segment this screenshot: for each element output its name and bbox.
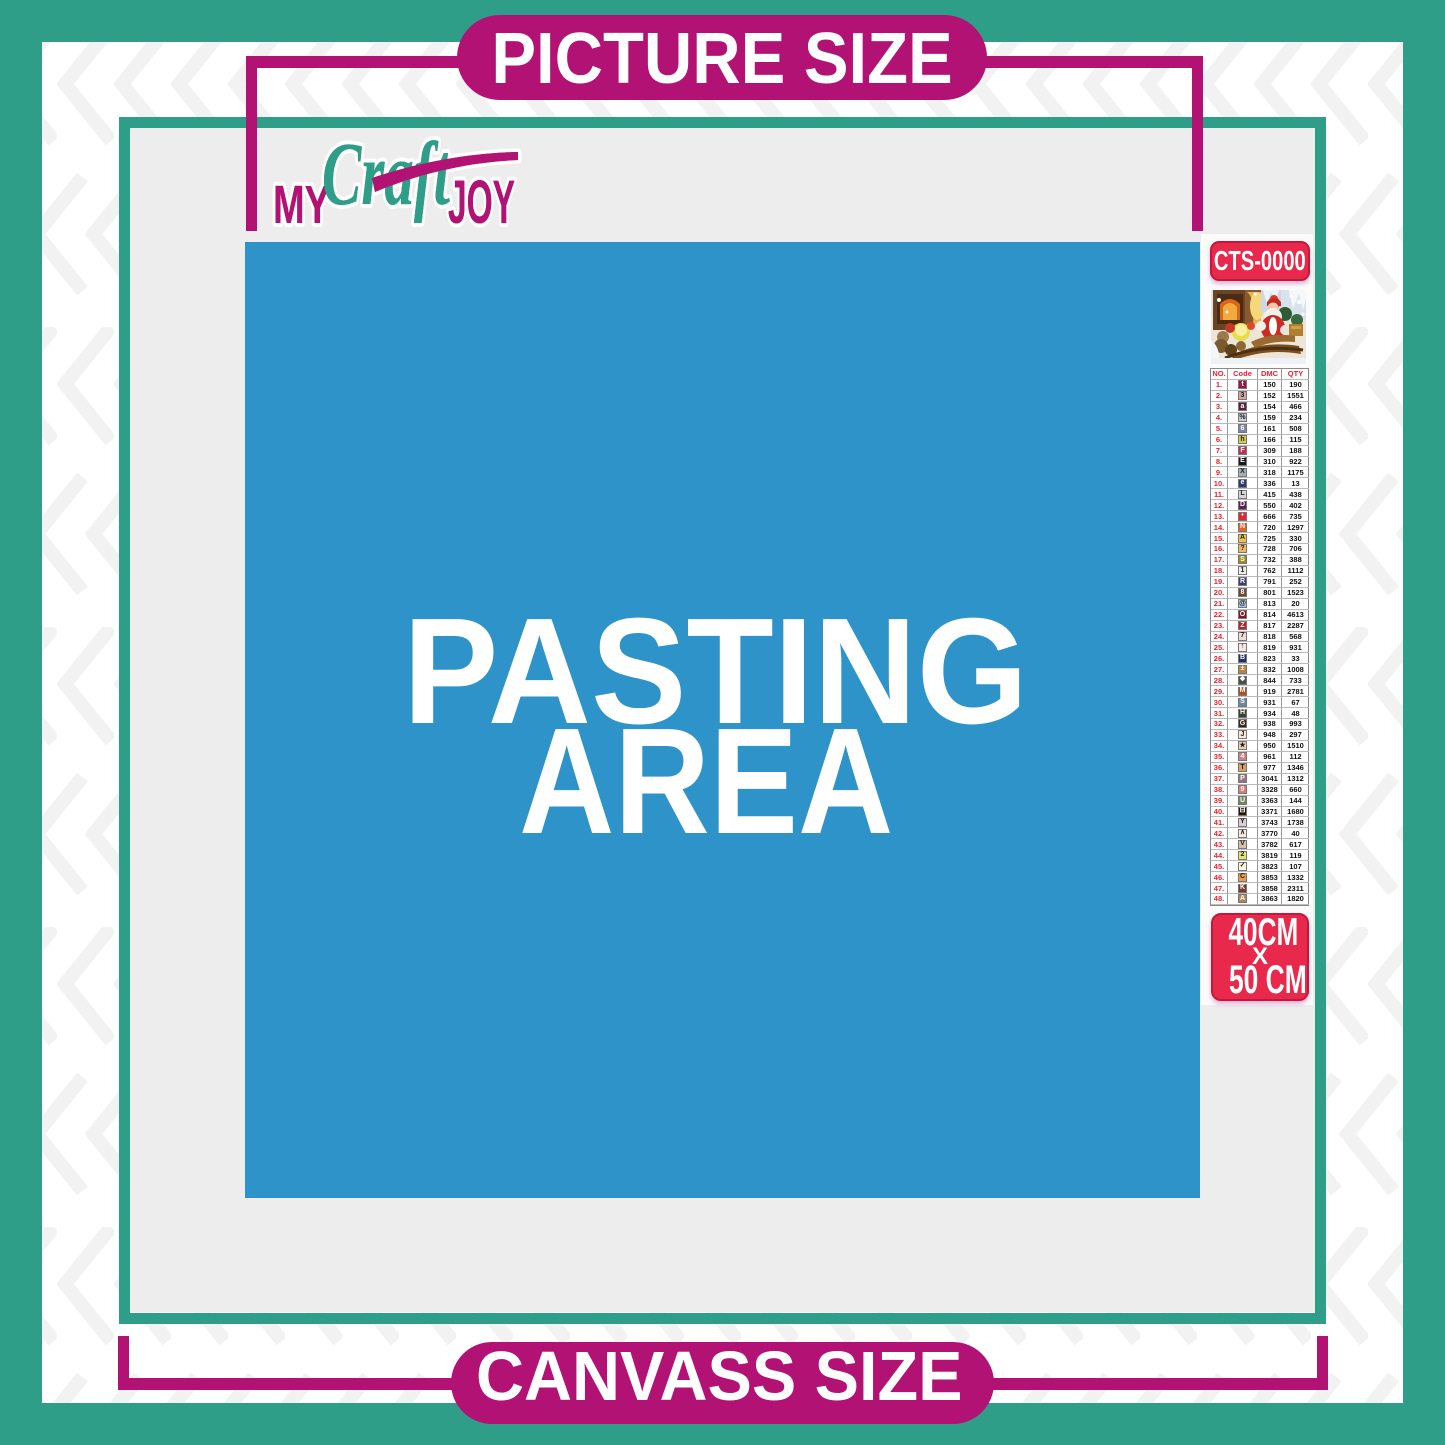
- svg-text:JOY: JOY: [448, 168, 515, 236]
